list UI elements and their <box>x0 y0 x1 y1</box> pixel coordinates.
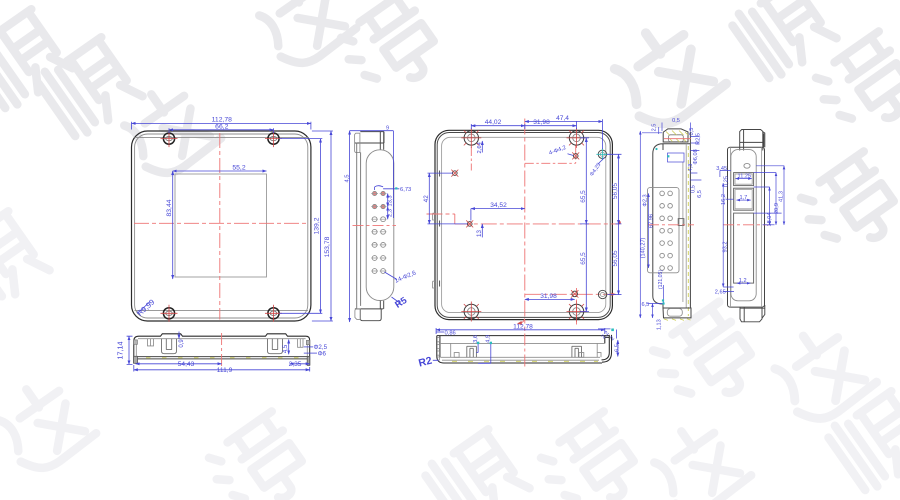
svg-text:55,2: 55,2 <box>232 165 245 172</box>
svg-text:41,3: 41,3 <box>779 191 785 202</box>
svg-text:2,35: 2,35 <box>289 361 302 368</box>
svg-text:Φ2,3: Φ2,3 <box>642 194 648 206</box>
svg-text:14-Φ2,6: 14-Φ2,6 <box>394 269 418 284</box>
svg-text:0,5: 0,5 <box>672 118 680 124</box>
svg-text:83,44: 83,44 <box>166 199 173 216</box>
svg-text:93,2: 93,2 <box>722 242 728 253</box>
svg-text:67,96: 67,96 <box>649 214 655 228</box>
svg-text:2,3: 2,3 <box>388 209 394 217</box>
svg-text:31,98: 31,98 <box>540 293 557 300</box>
svg-text:2: 2 <box>609 336 616 342</box>
svg-text:31,98: 31,98 <box>533 119 550 126</box>
svg-text:0,86: 0,86 <box>445 330 456 336</box>
svg-text:65,5: 65,5 <box>580 190 587 203</box>
svg-text:111,9: 111,9 <box>217 367 233 374</box>
svg-text:R5: R5 <box>393 294 409 310</box>
svg-text:Φ6: Φ6 <box>318 350 327 357</box>
svg-text:65,5: 65,5 <box>580 252 587 265</box>
svg-text:13,3: 13,3 <box>388 195 394 206</box>
svg-text:153,78: 153,78 <box>324 236 331 257</box>
svg-text:R2: R2 <box>417 355 433 370</box>
svg-text:16,2: 16,2 <box>721 194 727 205</box>
svg-text:Φ4,25: Φ4,25 <box>589 162 602 178</box>
svg-text:139,2: 139,2 <box>313 217 320 234</box>
svg-text:13: 13 <box>476 230 483 237</box>
svg-text:2,5: 2,5 <box>652 124 658 132</box>
svg-text:4-Φ4,2: 4-Φ4,2 <box>548 145 567 157</box>
svg-text:56,05: 56,05 <box>612 250 619 266</box>
svg-text:4,9: 4,9 <box>486 335 492 343</box>
svg-text:34,52: 34,52 <box>490 202 507 209</box>
svg-text:17,14: 17,14 <box>115 342 124 360</box>
svg-text:9: 9 <box>386 125 389 131</box>
svg-text:112,78: 112,78 <box>212 116 233 123</box>
svg-text:4,5: 4,5 <box>283 344 289 353</box>
svg-text:2,65: 2,65 <box>715 290 726 296</box>
svg-text:20,9: 20,9 <box>774 203 780 214</box>
svg-text:54,43: 54,43 <box>178 361 195 368</box>
svg-text:6,5: 6,5 <box>614 344 620 352</box>
svg-text:0,25: 0,25 <box>724 176 730 187</box>
svg-text:6,5: 6,5 <box>642 302 650 308</box>
svg-text:66,2: 66,2 <box>215 123 228 130</box>
svg-text:4,3: 4,3 <box>688 164 694 172</box>
svg-text:Φ6,08: Φ6,08 <box>693 149 699 164</box>
svg-text:47,4: 47,4 <box>556 115 569 122</box>
svg-text:112,78: 112,78 <box>513 323 533 330</box>
svg-text:R9,99: R9,99 <box>135 298 156 318</box>
svg-text:6,73: 6,73 <box>400 187 411 193</box>
svg-text:3,6: 3,6 <box>473 335 479 343</box>
svg-text:1,7: 1,7 <box>740 195 748 201</box>
svg-text:44,02: 44,02 <box>485 119 502 126</box>
svg-text:0,5: 0,5 <box>689 128 695 136</box>
svg-text:11,25: 11,25 <box>738 174 752 180</box>
svg-text:0,9: 0,9 <box>179 339 185 348</box>
svg-text:2,64: 2,64 <box>477 141 483 153</box>
svg-text:(121,05): (121,05) <box>658 270 664 290</box>
svg-text:56,05: 56,05 <box>612 183 619 199</box>
svg-text:(140,27): (140,27) <box>640 237 646 258</box>
svg-text:1,13: 1,13 <box>656 319 662 330</box>
svg-text:18,04: 18,04 <box>767 213 773 227</box>
svg-text:6,5: 6,5 <box>697 190 703 198</box>
svg-text:4,5: 4,5 <box>344 174 350 182</box>
svg-text:3,45: 3,45 <box>716 166 727 172</box>
svg-text:R2,5: R2,5 <box>696 133 702 145</box>
svg-text:0,5: 0,5 <box>691 185 697 193</box>
svg-text:1,2: 1,2 <box>739 278 747 284</box>
svg-text:42: 42 <box>423 195 430 203</box>
